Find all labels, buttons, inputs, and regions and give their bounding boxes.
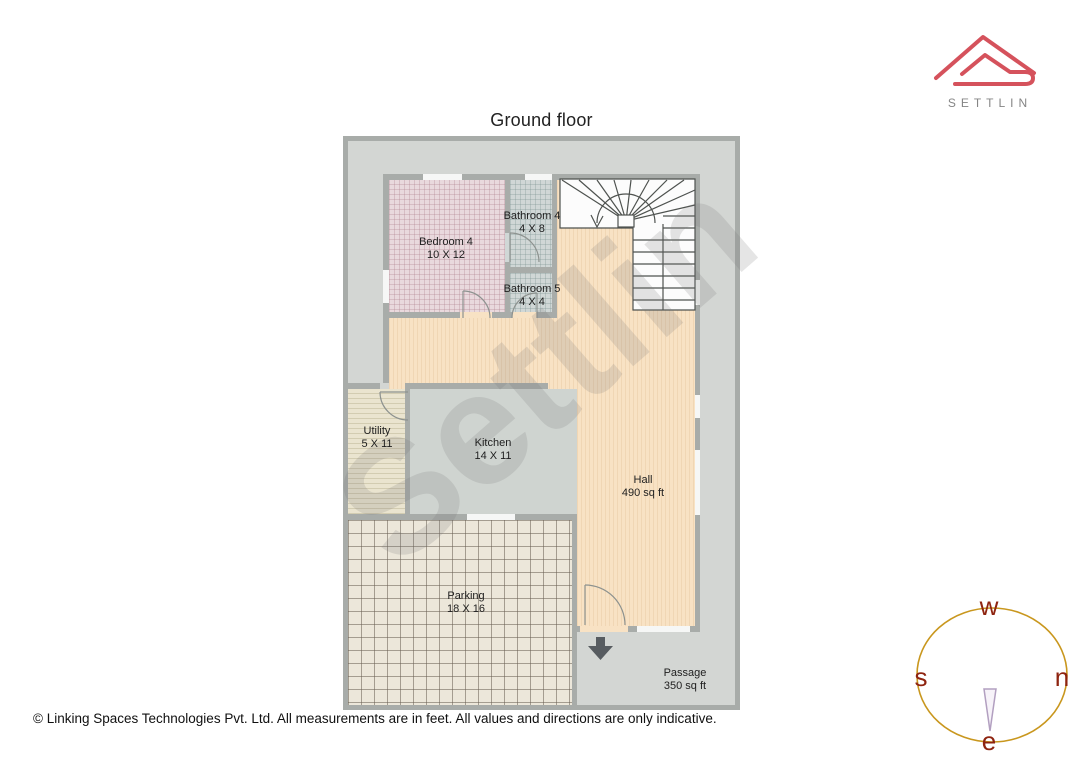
room-name: Kitchen [474, 437, 511, 450]
label-passage: Passage 350 sq ft [664, 667, 707, 693]
wall-parking-top [343, 514, 577, 520]
door-opening-hall-entrance [580, 626, 628, 632]
floor-plan-page: Ground floor [0, 0, 1080, 764]
window-hall-bottom [637, 626, 690, 632]
room-dimensions: 4 X 4 [504, 296, 561, 309]
settlin-logo-icon [936, 37, 1034, 84]
compass: w s n e [915, 591, 1070, 756]
door-opening-bathroom5 [512, 312, 537, 318]
copyright-text: © Linking Spaces Technologies Pvt. Ltd. … [33, 711, 717, 726]
window-kitchen-bottom [467, 514, 515, 520]
label-utility: Utility 5 X 11 [362, 425, 393, 451]
door-opening-bathroom4 [505, 233, 510, 262]
room-dimensions: 18 X 16 [447, 603, 485, 616]
compass-circle [917, 608, 1067, 742]
room-name: Bathroom 4 [504, 210, 561, 223]
compass-south: s [915, 662, 928, 692]
room-name: Parking [447, 590, 485, 603]
room-dimensions: 10 X 12 [419, 249, 473, 262]
room-dimensions: 5 X 11 [362, 438, 393, 451]
compass-west: w [979, 591, 999, 621]
wall-parking-right [572, 514, 577, 705]
compass-east: e [982, 726, 996, 756]
label-bathroom5: Bathroom 5 4 X 4 [504, 283, 561, 309]
label-parking: Parking 18 X 16 [447, 590, 485, 616]
room-name: Passage [664, 667, 707, 680]
room-dimensions: 4 X 8 [504, 223, 561, 236]
brand-wordmark: SETTLIN [929, 96, 1051, 110]
room-dimensions: 490 sq ft [622, 487, 664, 500]
room-hall-column [577, 389, 695, 626]
room-hall-under-stairs [557, 228, 633, 318]
room-name: Utility [362, 425, 393, 438]
room-name: Bedroom 4 [419, 236, 473, 249]
room-hall-under-run [633, 310, 695, 318]
window-bathroom4-top [525, 174, 552, 180]
room-dimensions: 14 X 11 [474, 450, 511, 463]
compass-needle-icon [984, 689, 996, 731]
room-dimensions: 350 sq ft [664, 680, 707, 693]
page-title: Ground floor [343, 110, 740, 131]
window-hall-right-3 [695, 450, 700, 515]
room-name: Hall [622, 474, 664, 487]
room-name: Bathroom 5 [504, 283, 561, 296]
wall-bathroom-divider [510, 267, 552, 273]
window-hall-right-2 [695, 395, 700, 418]
window-hall-right-1 [695, 280, 700, 305]
wall-kitchen-top [410, 383, 548, 389]
label-bedroom4: Bedroom 4 10 X 12 [419, 236, 473, 262]
room-hall-band [389, 318, 695, 389]
room-utility [348, 389, 405, 514]
label-hall: Hall 490 sq ft [622, 474, 664, 500]
compass-north: n [1055, 662, 1069, 692]
window-bedroom-left [383, 270, 389, 303]
wall-utility-divider [405, 383, 410, 514]
door-opening-bedroom [460, 312, 492, 318]
wall-utility-top [343, 383, 380, 389]
label-bathroom4: Bathroom 4 4 X 8 [504, 210, 561, 236]
label-kitchen: Kitchen 14 X 11 [474, 437, 511, 463]
window-bedroom-top [423, 174, 462, 180]
